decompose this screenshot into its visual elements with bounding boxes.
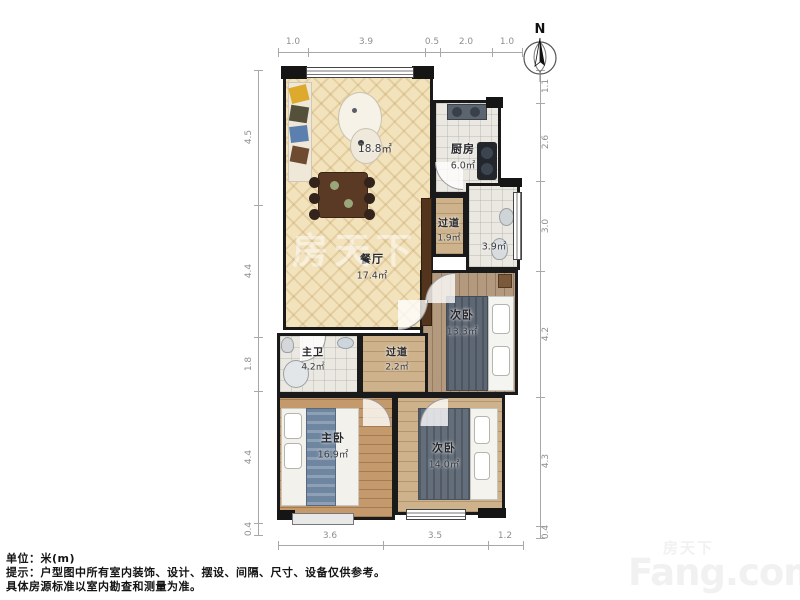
sink-basin xyxy=(452,107,462,117)
wall-pier xyxy=(412,66,434,79)
label-bathroom-north: 3.9㎡ xyxy=(482,238,507,253)
label-master-bathroom: 主卫 4.2㎡ xyxy=(301,344,324,373)
dim-left-4: 4.4 xyxy=(244,450,254,464)
dim-right-5: 4.3 xyxy=(541,454,551,468)
dim-line-left xyxy=(258,70,259,535)
washbasin xyxy=(499,208,514,226)
north-compass-icon: N xyxy=(517,20,563,86)
dim-top-5: 1.0 xyxy=(500,37,514,47)
floorplan-page: 房天下 Fang.com xyxy=(0,0,800,600)
label-master-bedroom: 主卧 16.9㎡ xyxy=(318,430,349,461)
sofa-cushion xyxy=(290,146,310,165)
pillow xyxy=(284,413,302,439)
sink-basin xyxy=(470,107,480,117)
bedroom-south-window xyxy=(406,509,466,520)
dim-right-3: 3.0 xyxy=(541,219,551,233)
dining-table xyxy=(318,172,368,218)
master-bedroom-bay-window xyxy=(292,513,354,525)
dim-right-4: 4.2 xyxy=(541,327,551,341)
dim-line-bottom xyxy=(278,545,523,546)
dim-line-top xyxy=(278,52,522,53)
dim-top-2: 3.9 xyxy=(359,37,373,47)
dining-chair xyxy=(309,209,320,220)
burner xyxy=(481,163,493,175)
dim-top-3: 0.5 xyxy=(425,37,439,47)
wall-pier xyxy=(281,66,307,79)
label-dining: 餐厅 17.4㎡ xyxy=(357,251,388,282)
pillow xyxy=(284,443,302,469)
footer-unit-line: 单位：米(m) xyxy=(6,552,386,566)
label-hallway-south: 过道 2.2㎡ xyxy=(385,344,408,373)
dining-chair xyxy=(364,177,375,188)
dim-top-1: 1.0 xyxy=(286,37,300,47)
dim-right-2: 2.6 xyxy=(541,135,551,149)
label-kitchen: 厨房 6.0㎡ xyxy=(451,141,476,172)
dim-left-3: 1.8 xyxy=(244,357,254,371)
pillow xyxy=(474,452,490,480)
bathroom-window xyxy=(513,192,522,260)
washbasin xyxy=(337,337,354,349)
sofa-cushion xyxy=(289,105,309,124)
dining-chair xyxy=(309,193,320,204)
label-hallway-north: 过道 1.9㎡ xyxy=(437,215,460,244)
dining-chair xyxy=(364,193,375,204)
wall-pier xyxy=(478,508,506,518)
nightstand xyxy=(498,274,512,288)
dim-bottom-2: 3.5 xyxy=(428,531,442,541)
balcony-window xyxy=(306,67,414,78)
fang-logo-english: Fang.com xyxy=(628,551,800,594)
label-bedroom-east: 次卧 13.3㎡ xyxy=(447,307,478,338)
footer-tip-line2: 具体房源标准以室内勘查和测量为准。 xyxy=(6,580,386,594)
dim-left-1: 4.5 xyxy=(244,130,254,144)
dining-chair xyxy=(364,209,375,220)
toilet xyxy=(281,337,294,353)
dim-right-6: 0.4 xyxy=(541,525,551,539)
label-living: 18.8㎡ xyxy=(358,140,392,156)
dim-bottom-1: 3.6 xyxy=(323,531,337,541)
dim-left-5: 0.4 xyxy=(244,522,254,536)
plate xyxy=(344,199,353,208)
burner xyxy=(481,147,493,159)
wall-pier xyxy=(500,178,522,187)
sofa-cushion xyxy=(289,125,309,143)
wall-pier xyxy=(486,97,503,108)
label-bedroom-south: 次卧 14.0㎡ xyxy=(429,440,460,471)
plate xyxy=(330,181,339,190)
north-label: N xyxy=(535,22,546,37)
pillow xyxy=(492,346,510,376)
dim-bottom-3: 1.2 xyxy=(498,531,512,541)
dim-left-2: 4.4 xyxy=(244,264,254,278)
pillow xyxy=(474,416,490,444)
pillow xyxy=(492,304,510,334)
dim-top-4: 2.0 xyxy=(459,37,473,47)
footer-tip-line: 提示：户型图中所有室内装饰、设计、摆设、间隔、尺寸、设备仅供参考。 xyxy=(6,566,386,580)
rug-item xyxy=(352,108,357,113)
footer-disclaimer: 单位：米(m) 提示：户型图中所有室内装饰、设计、摆设、间隔、尺寸、设备仅供参考… xyxy=(6,552,386,594)
dining-chair xyxy=(309,177,320,188)
